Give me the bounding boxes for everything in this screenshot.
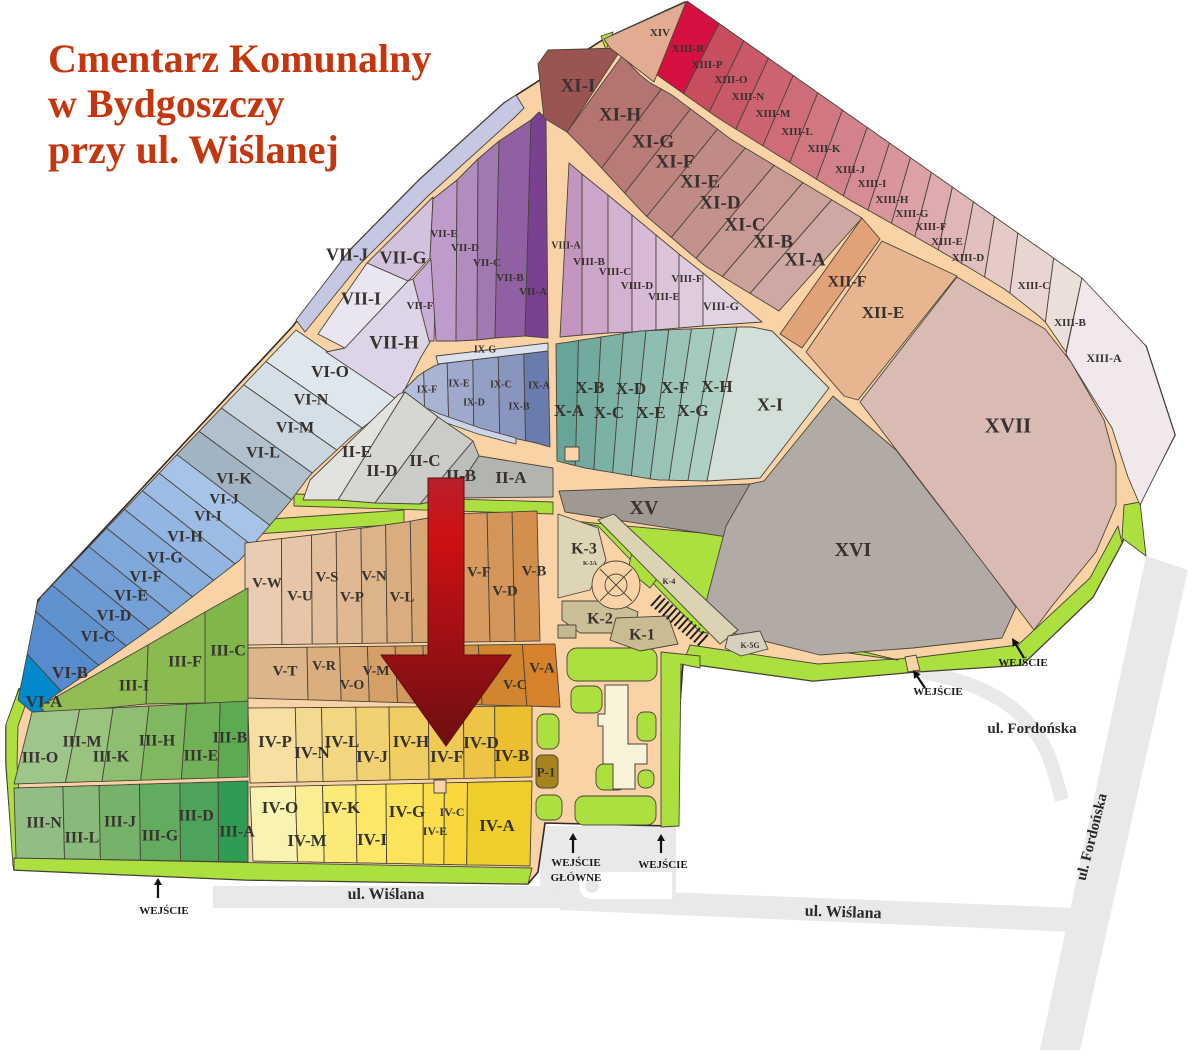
svg-text:III-I: III-I [119,678,149,695]
svg-text:K-2: K-2 [587,611,613,628]
svg-text:V-U: V-U [287,588,313,604]
svg-text:X-C: X-C [594,403,624,422]
svg-text:III-G: III-G [142,828,179,845]
svg-text:II-C: II-C [409,451,440,470]
svg-text:GŁÓWNE: GŁÓWNE [551,872,602,884]
svg-text:III-L: III-L [65,830,100,847]
svg-text:VII-J: VII-J [326,244,368,264]
svg-text:III-K: III-K [93,749,130,766]
svg-text:XIII-K: XIII-K [807,143,840,155]
svg-text:V-N: V-N [361,568,387,584]
svg-text:IX-D: IX-D [463,398,485,409]
svg-text:VII-C: VII-C [473,257,501,269]
svg-text:V-R: V-R [312,659,337,674]
svg-text:VI-F: VI-F [130,569,163,586]
svg-text:VI-K: VI-K [216,471,252,488]
svg-text:IV-C: IV-C [439,805,464,819]
svg-text:XIII-C: XIII-C [1018,280,1050,292]
svg-text:IV-P: IV-P [258,732,292,751]
svg-text:VI-N: VI-N [294,392,329,409]
svg-text:IV-K: IV-K [324,798,361,817]
svg-text:IV-O: IV-O [262,798,299,817]
svg-text:V-C: V-C [503,678,527,693]
svg-text:II-D: II-D [366,461,397,480]
svg-text:XI-F: XI-F [655,152,694,173]
svg-text:VII-H: VII-H [369,333,419,354]
svg-text:X-H: X-H [701,377,732,396]
svg-text:XIII-B: XIII-B [1054,317,1086,329]
svg-text:VI-G: VI-G [147,550,183,567]
svg-text:IX-F: IX-F [417,385,438,396]
svg-text:VI-D: VI-D [97,608,132,625]
svg-text:V-W: V-W [252,575,282,591]
svg-text:WEJŚCIE: WEJŚCIE [551,857,601,869]
svg-text:XIII-E: XIII-E [931,236,963,248]
svg-text:X-A: X-A [554,401,585,420]
svg-text:IV-E: IV-E [423,824,447,838]
svg-text:II-A: II-A [495,468,527,487]
svg-text:WEJŚCIE: WEJŚCIE [638,859,688,871]
svg-text:IV-G: IV-G [389,802,426,821]
svg-text:Cmentarz Komunalny: Cmentarz Komunalny [48,36,431,81]
svg-text:IX-B: IX-B [508,402,529,413]
svg-text:w Bydgoszczy: w Bydgoszczy [48,81,285,126]
svg-text:VI-B: VI-B [52,663,88,682]
svg-text:XIV: XIV [650,27,670,39]
svg-text:III-H: III-H [139,733,176,750]
svg-text:IV-B: IV-B [495,746,530,765]
svg-text:III-D: III-D [178,808,214,825]
svg-text:XIII-G: XIII-G [895,208,928,220]
svg-text:VIII-E: VIII-E [648,291,680,303]
svg-text:X-G: X-G [677,401,708,420]
svg-text:IV-L: IV-L [325,732,360,751]
svg-text:X-I: X-I [757,394,783,414]
svg-text:VII-D: VII-D [451,242,479,254]
svg-text:V-P: V-P [340,589,364,605]
svg-text:III-A: III-A [219,824,255,841]
svg-text:X-E: X-E [636,403,665,422]
svg-text:ul. Wiślana: ul. Wiślana [804,903,881,923]
svg-text:VIII-F: VIII-F [671,273,702,285]
svg-text:XIII-R: XIII-R [672,43,705,55]
svg-text:XIII-L: XIII-L [781,126,813,138]
svg-text:VI-I: VI-I [194,508,222,524]
svg-text:VII-A: VII-A [519,286,547,298]
svg-text:V-B: V-B [522,563,547,579]
svg-text:XVI: XVI [835,539,872,561]
svg-text:XI-H: XI-H [599,105,641,126]
svg-text:V-M: V-M [363,664,390,679]
svg-text:VII-B: VII-B [496,272,524,284]
svg-text:X-F: X-F [661,378,689,397]
svg-text:V-O: V-O [340,678,365,693]
svg-text:WEJŚCIE: WEJŚCIE [998,657,1048,669]
svg-text:III-N: III-N [26,815,62,832]
svg-text:XIII-J: XIII-J [835,164,865,176]
svg-text:III-O: III-O [22,750,58,767]
svg-text:XIII-H: XIII-H [875,194,908,206]
svg-text:WEJŚCIE: WEJŚCIE [139,905,189,917]
svg-text:XIII-A: XIII-A [1086,351,1122,365]
svg-text:XI-D: XI-D [699,193,740,214]
svg-text:III-J: III-J [104,814,136,831]
svg-text:IV-F: IV-F [430,747,464,766]
svg-text:IV-H: IV-H [393,732,430,751]
svg-text:XIII-D: XIII-D [952,252,984,264]
svg-text:VI-L: VI-L [246,445,280,462]
svg-text:ul. Wiślana: ul. Wiślana [348,886,425,903]
svg-text:XIII-F: XIII-F [915,221,946,233]
svg-text:VI-H: VI-H [167,529,203,546]
svg-text:VI-C: VI-C [81,629,116,646]
svg-text:XIII-M: XIII-M [756,108,791,120]
svg-text:V-A: V-A [529,660,555,676]
svg-text:XIII-P: XIII-P [691,59,722,71]
svg-text:VII-F: VII-F [407,300,434,312]
svg-text:IV-J: IV-J [356,747,388,766]
svg-text:IV-A: IV-A [479,816,515,835]
svg-text:P-1: P-1 [537,765,556,780]
svg-text:VIII-G: VIII-G [703,299,739,313]
svg-text:X-B: X-B [575,378,604,397]
svg-text:VI-A: VI-A [26,692,64,711]
svg-text:XIII-O: XIII-O [714,74,747,86]
svg-text:II-E: II-E [342,442,372,461]
svg-text:K-3A: K-3A [583,561,598,567]
svg-text:przy ul. Wiślanej: przy ul. Wiślanej [48,127,339,172]
svg-text:VIII-A: VIII-A [551,241,581,252]
svg-text:XI-I: XI-I [561,76,596,97]
svg-text:XI-A: XI-A [784,250,825,271]
svg-text:IX-E: IX-E [448,379,469,390]
svg-text:XV: XV [630,497,659,519]
svg-text:K-5G: K-5G [740,641,759,650]
svg-text:III-C: III-C [210,643,246,660]
svg-text:VI-E: VI-E [114,588,148,605]
svg-text:V-T: V-T [273,663,298,679]
svg-text:XII-F: XII-F [827,274,866,291]
svg-text:III-F: III-F [168,654,202,671]
svg-text:IX-A: IX-A [528,381,550,392]
svg-text:XI-E: XI-E [680,172,720,193]
svg-text:VII-I: VII-I [341,288,381,308]
svg-text:XI-G: XI-G [632,132,674,153]
svg-text:VI-O: VI-O [311,362,349,381]
svg-text:V-S: V-S [315,569,338,585]
svg-text:V-F: V-F [467,564,491,580]
svg-text:V-D: V-D [492,583,518,599]
svg-text:IV-I: IV-I [357,830,387,849]
svg-text:X-D: X-D [616,379,646,398]
svg-text:VI-M: VI-M [276,420,314,437]
svg-text:K-1: K-1 [629,627,655,644]
svg-text:VII-E: VII-E [430,228,458,240]
svg-text:K-4: K-4 [663,577,676,586]
svg-text:III-B: III-B [213,730,248,747]
svg-text:VII-G: VII-G [379,247,426,267]
svg-text:XVII: XVII [985,413,1032,437]
svg-text:K-3: K-3 [571,541,597,558]
svg-text:IV-M: IV-M [287,831,326,850]
svg-text:ul. Fordońska: ul. Fordońska [987,721,1077,737]
svg-text:IX-G: IX-G [474,345,496,356]
svg-text:XIII-N: XIII-N [732,91,764,103]
svg-text:XIII-I: XIII-I [858,178,887,190]
svg-text:IV-D: IV-D [463,733,499,752]
svg-text:IX-C: IX-C [490,380,512,391]
svg-text:VI-J: VI-J [209,491,239,507]
svg-text:WEJŚCIE: WEJŚCIE [913,686,963,698]
svg-text:VIII-C: VIII-C [599,266,631,278]
svg-text:V-L: V-L [390,589,415,605]
svg-text:XII-E: XII-E [862,303,905,322]
svg-text:III-E: III-E [184,748,219,765]
